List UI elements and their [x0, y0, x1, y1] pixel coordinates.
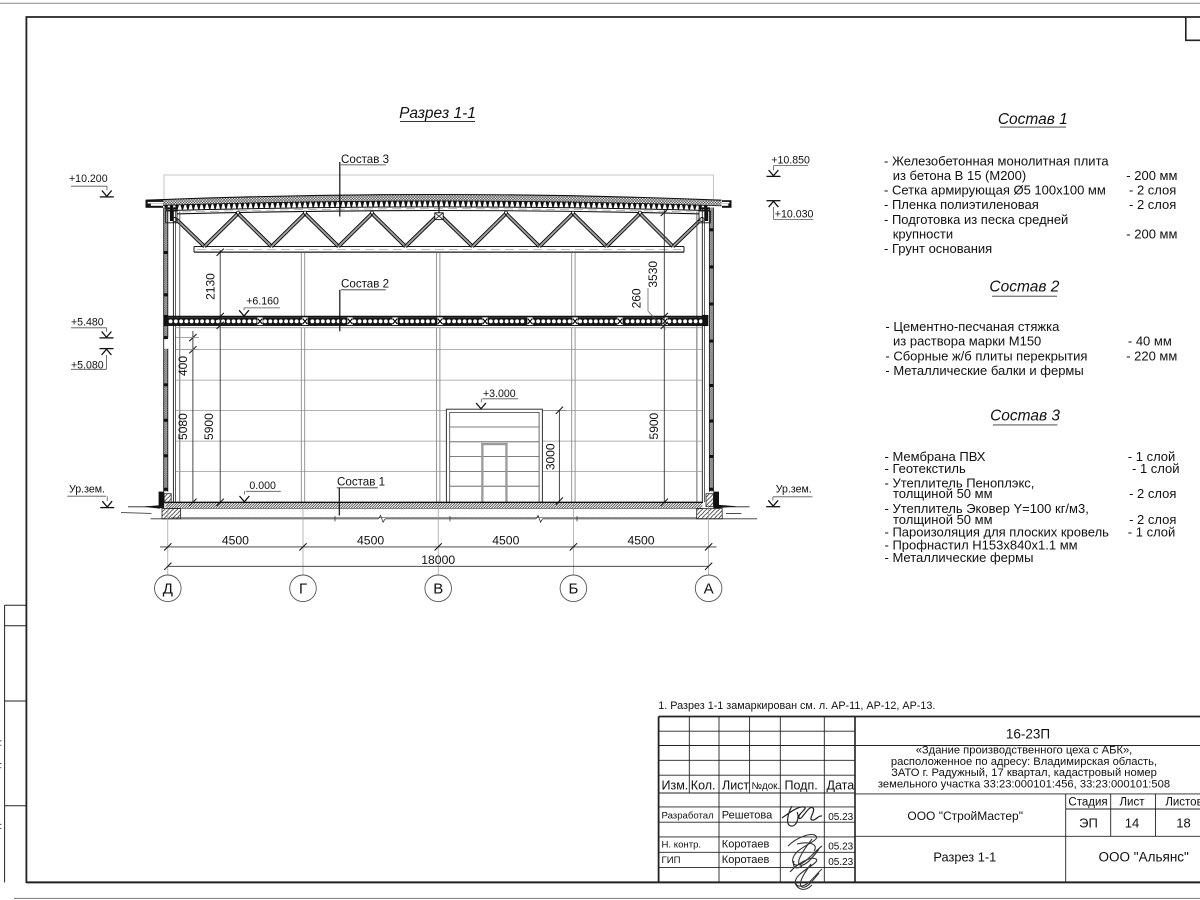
- svg-text:Лист: Лист: [722, 779, 749, 793]
- svg-text:0.000: 0.000: [249, 480, 276, 492]
- svg-text:ГИП: ГИП: [662, 855, 681, 866]
- svg-text:толщиной 50 мм: толщиной 50 мм: [893, 486, 993, 501]
- svg-text:Коротаев: Коротаев: [722, 839, 770, 851]
- svg-text:Подп. и дата: Подп. и дата: [0, 726, 2, 779]
- svg-text:Лист: Лист: [1120, 797, 1146, 809]
- svg-text:- Грунт основания: - Грунт основания: [884, 241, 992, 256]
- svg-text:Дата: Дата: [827, 779, 855, 793]
- svg-text:- 200 мм: - 200 мм: [1126, 227, 1177, 242]
- svg-text:5900: 5900: [647, 412, 661, 439]
- svg-text:- Металлические балки и фермы: - Металлические балки и фермы: [885, 363, 1083, 378]
- svg-text:- 2 слоя: - 2 слоя: [1129, 183, 1176, 198]
- svg-text:- 200 мм: - 200 мм: [1126, 168, 1177, 183]
- svg-text:Состав 2: Состав 2: [989, 279, 1059, 296]
- svg-text:Решетова: Решетова: [722, 809, 773, 821]
- svg-text:Состав 1: Состав 1: [337, 476, 385, 489]
- svg-text:Состав 2: Состав 2: [341, 278, 389, 291]
- svg-text:из раствора марки М150: из раствора марки М150: [893, 334, 1041, 349]
- svg-text:- Пленка полиэтиленовая: - Пленка полиэтиленовая: [884, 197, 1039, 212]
- svg-text:- Цементно-песчаная стяжка: - Цементно-песчаная стяжка: [885, 319, 1060, 334]
- svg-text:ЗАТО г. Радужный, 17 квартал,: ЗАТО г. Радужный, 17 квартал, кадастровы…: [891, 767, 1157, 779]
- svg-text:4500: 4500: [357, 533, 384, 547]
- svg-text:18: 18: [1176, 815, 1190, 830]
- svg-text:+5.480: +5.480: [71, 317, 104, 329]
- svg-text:400: 400: [176, 356, 190, 376]
- svg-text:Ур.зем.: Ур.зем.: [776, 484, 812, 496]
- svg-text:1. Разрез 1-1 замаркирован см.: 1. Разрез 1-1 замаркирован см. л. АР-11,…: [658, 700, 935, 712]
- svg-text:расположенное по адресу: Влади: расположенное по адресу: Владимирская об…: [891, 756, 1157, 768]
- svg-text:Б: Б: [568, 581, 578, 598]
- svg-text:из бетона В 15 (М200): из бетона В 15 (М200): [893, 168, 1027, 183]
- svg-text:- Металлические фермы: - Металлические фермы: [885, 550, 1034, 565]
- svg-text:3000: 3000: [544, 443, 558, 470]
- svg-text:№док.: №док.: [752, 781, 781, 792]
- svg-text:18000: 18000: [421, 553, 455, 567]
- svg-text:05.23: 05.23: [828, 841, 853, 852]
- svg-text:Подп.: Подп.: [785, 779, 818, 793]
- svg-text:А: А: [704, 581, 714, 598]
- svg-text:Г: Г: [299, 581, 307, 598]
- svg-text:Разрез 1-1: Разрез 1-1: [399, 105, 476, 122]
- svg-text:Ур.зем.: Ур.зем.: [69, 483, 105, 495]
- svg-text:ООО "Альянс": ООО "Альянс": [1099, 850, 1189, 865]
- svg-text:- Сборные ж/б плиты перекрытия: - Сборные ж/б плиты перекрытия: [885, 348, 1087, 363]
- svg-text:260: 260: [630, 288, 644, 308]
- svg-text:крупности: крупности: [893, 227, 953, 242]
- svg-text:Д: Д: [163, 581, 173, 598]
- svg-text:Разработал: Разработал: [662, 810, 714, 821]
- svg-text:+6.160: +6.160: [246, 295, 279, 307]
- svg-text:- 1 слой: - 1 слой: [1128, 525, 1176, 540]
- svg-text:Состав 3: Состав 3: [990, 407, 1060, 424]
- svg-text:- 2 слоя: - 2 слоя: [1129, 486, 1176, 501]
- svg-text:- 40 мм: - 40 мм: [1128, 334, 1172, 349]
- svg-text:- 220 мм: - 220 мм: [1126, 348, 1177, 363]
- svg-text:2130: 2130: [203, 273, 217, 300]
- svg-text:Состав 3: Состав 3: [341, 153, 389, 166]
- svg-text:ООО "СтройМастер": ООО "СтройМастер": [907, 809, 1023, 823]
- svg-text:Н. контр.: Н. контр.: [662, 840, 702, 851]
- svg-text:Листов: Листов: [1165, 797, 1200, 809]
- svg-text:4500: 4500: [492, 533, 519, 547]
- svg-text:В: В: [433, 581, 443, 598]
- svg-text:Коротаев: Коротаев: [722, 854, 770, 866]
- svg-text:Изм.: Изм.: [662, 779, 689, 793]
- svg-text:4500: 4500: [222, 533, 249, 547]
- svg-text:+10.030: +10.030: [775, 208, 814, 220]
- svg-text:- Сетка армирующая Ø5 100х100: - Сетка армирующая Ø5 100х100 мм: [884, 183, 1106, 198]
- svg-text:Кол.: Кол.: [691, 779, 716, 793]
- svg-text:- Железобетонная монолитная п: - Железобетонная монолитная плита: [884, 153, 1109, 168]
- svg-text:«Здание производственного цеха: «Здание производственного цеха с АБК»,: [916, 744, 1133, 756]
- svg-text:05.23: 05.23: [828, 857, 853, 868]
- svg-text:- Подготовка из песка средней: - Подготовка из песка средней: [884, 212, 1068, 227]
- svg-text:Взам. инв. №: Взам. инв. №: [0, 635, 2, 691]
- svg-text:- 1 слой: - 1 слой: [1132, 461, 1180, 476]
- svg-text:Стадия: Стадия: [1068, 797, 1107, 809]
- svg-text:4500: 4500: [627, 533, 654, 547]
- svg-text:- 2 слоя: - 2 слоя: [1129, 197, 1176, 212]
- svg-text:05.23: 05.23: [828, 812, 853, 823]
- svg-text:+10.200: +10.200: [69, 173, 108, 185]
- svg-text:3530: 3530: [646, 261, 660, 288]
- svg-text:Инв. № подл.: Инв. № подл.: [0, 816, 2, 872]
- svg-text:14: 14: [1125, 815, 1139, 830]
- svg-text:16-23П: 16-23П: [1006, 727, 1050, 742]
- svg-text:Разрез 1-1: Разрез 1-1: [933, 849, 996, 864]
- svg-text:5080: 5080: [176, 413, 190, 440]
- svg-text:+3.000: +3.000: [483, 388, 516, 400]
- svg-text:ЭП: ЭП: [1079, 815, 1098, 830]
- svg-text:земельного участка 33:23:00010: земельного участка 33:23:000101:456, 33:…: [878, 779, 1170, 791]
- svg-text:5900: 5900: [202, 413, 216, 440]
- svg-text:Состав 1: Состав 1: [998, 111, 1068, 128]
- svg-text:- Геотекстиль: - Геотекстиль: [885, 461, 966, 476]
- svg-text:+10.850: +10.850: [771, 154, 810, 166]
